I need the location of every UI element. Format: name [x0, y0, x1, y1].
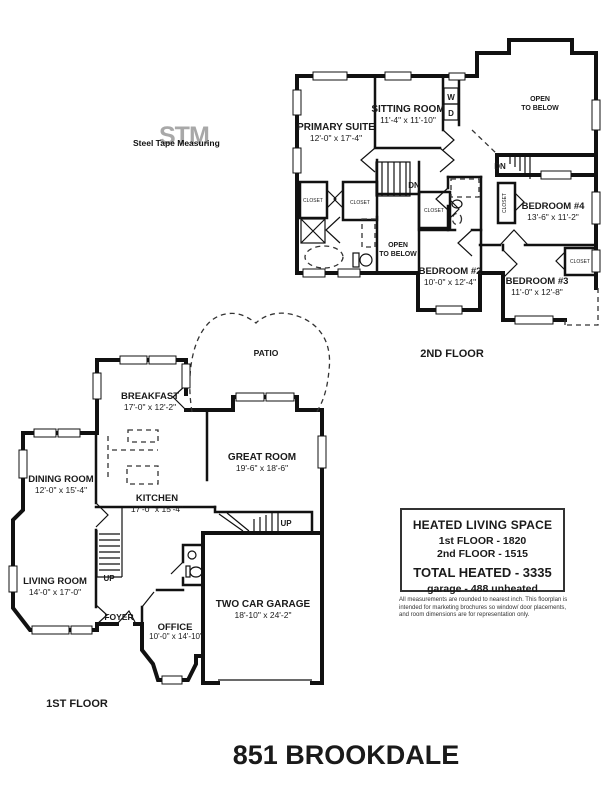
info-second-floor-area: 2nd FLOOR - 1515	[402, 548, 563, 560]
up-stairs-label: UP	[103, 574, 115, 583]
disclaimer-line1: All measurements are rounded to nearest …	[399, 597, 573, 605]
floorplan-page: STM Steel Tape Measuring	[0, 0, 612, 792]
up-stairs-label-2: UP	[280, 519, 292, 528]
kitchen-label: KITCHEN	[136, 493, 178, 504]
sitting-room-label: SITTING ROOM	[371, 104, 444, 115]
disclaimer-text: All measurements are rounded to nearest …	[399, 597, 573, 620]
plan-title: 851 BROOKDALE	[233, 740, 460, 771]
washer-label: W	[447, 93, 455, 102]
info-first-floor-area: 1st FLOOR - 1820	[402, 535, 563, 547]
info-total-heated: TOTAL HEATED - 3335	[402, 565, 563, 580]
heated-living-space-box: HEATED LIVING SPACE 1st FLOOR - 1820 2nd…	[400, 508, 565, 592]
open-to-below-mid-line2: TO BELOW	[379, 251, 417, 258]
patio-label: PATIO	[254, 348, 279, 358]
disclaimer-line3: and room dimensions are for representati…	[399, 612, 573, 620]
garage-dims: 18'-10" x 24'-2"	[234, 610, 291, 620]
sitting-room-dims: 11'-4" x 11'-10"	[380, 115, 436, 125]
closet-label: CLOSET	[303, 198, 323, 204]
dining-room-label: DINING ROOM	[28, 474, 94, 485]
first-floor-labels: PATIO BREAKFAST 17'-0" x 12'-2" DINING R…	[23, 348, 310, 710]
bedroom4-dims: 13'-6" x 11'-2"	[527, 212, 579, 222]
closet-label: CLOSET	[350, 200, 370, 206]
steel-tape-measuring-logo: STM Steel Tape Measuring	[133, 124, 253, 164]
first-floor-plan: PATIO BREAKFAST 17'-0" x 12'-2" DINING R…	[5, 300, 345, 712]
disclaimer-line2: intended for marketing brochures so wind…	[399, 605, 573, 613]
open-to-below-top-line1: OPEN	[530, 96, 550, 103]
logo-text: Steel Tape Measuring	[133, 138, 220, 148]
first-floor-title: 1ST FLOOR	[46, 698, 108, 710]
info-garage-area: garage - 488 unheated	[402, 583, 563, 595]
open-to-below-top-line2: TO BELOW	[521, 105, 559, 112]
dining-room-dims: 12'-0" x 15'-4"	[35, 485, 87, 495]
foyer-label: FOYER	[104, 612, 133, 622]
living-room-dims: 14'-0" x 17'-0"	[29, 587, 81, 597]
primary-suite-dims: 12'-0" x 17'-4"	[310, 133, 362, 143]
great-room-label: GREAT ROOM	[228, 452, 296, 463]
dryer-label: D	[448, 109, 454, 118]
bedroom3-label: BEDROOM #3	[506, 276, 569, 287]
second-floor-title: 2ND FLOOR	[420, 348, 484, 360]
bedroom3-dims: 11'-0" x 12'-8"	[511, 287, 563, 297]
breakfast-label: BREAKFAST	[121, 391, 179, 402]
living-room-label: LIVING ROOM	[23, 576, 87, 587]
open-to-below-mid-line1: OPEN	[388, 242, 408, 249]
kitchen-dims: 17'-0" x 15'-4"	[131, 504, 183, 514]
great-room-dims: 19'-6" x 18'-6"	[236, 463, 288, 473]
down-stairs-label-2: DN	[494, 162, 506, 171]
closet-label: CLOSET	[570, 259, 590, 265]
closet-label: CLOSET	[502, 193, 508, 213]
info-box-title: HEATED LIVING SPACE	[402, 518, 563, 532]
garage-label: TWO CAR GARAGE	[216, 599, 311, 610]
closet-label: CLOSET	[424, 208, 444, 214]
breakfast-dims: 17'-0" x 12'-2"	[124, 402, 176, 412]
office-dims: 10'-0" x 14'-10"	[149, 632, 203, 641]
down-stairs-label: DN	[408, 181, 420, 190]
bedroom4-label: BEDROOM #4	[522, 201, 586, 212]
bedroom2-label: BEDROOM #2	[419, 266, 482, 277]
primary-suite-label: PRIMARY SUITE	[297, 122, 375, 133]
bedroom2-dims: 10'-0" x 12'-4"	[424, 277, 476, 287]
